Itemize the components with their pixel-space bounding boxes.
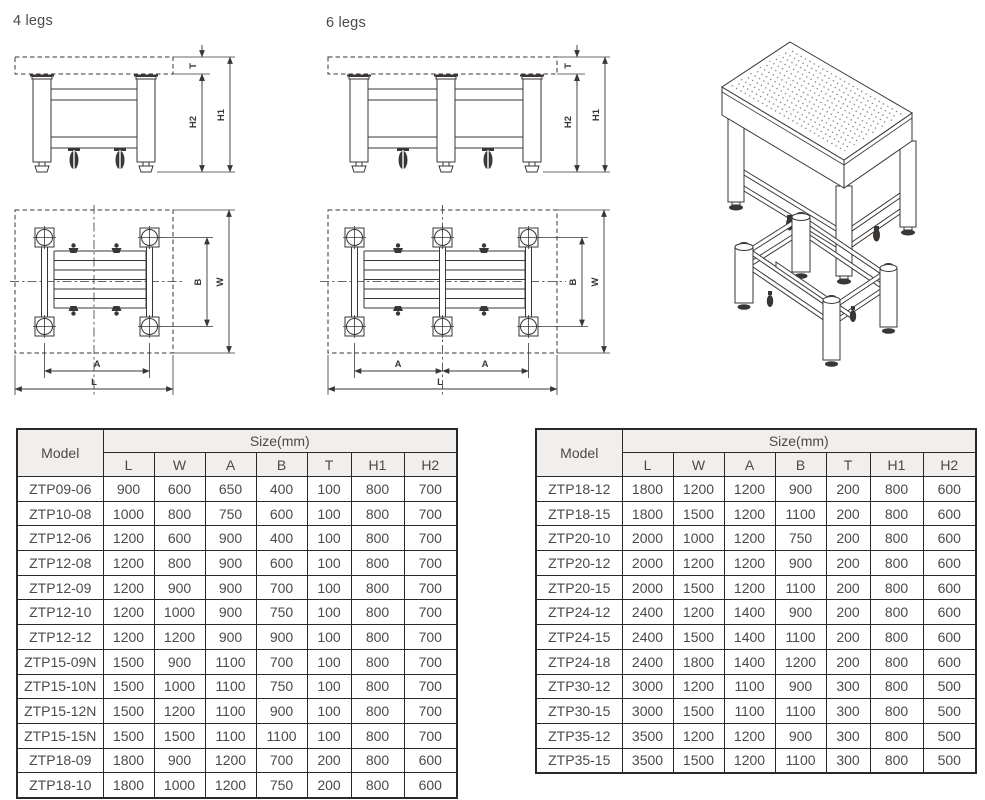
model-cell: ZTP30-15	[536, 699, 622, 724]
size-cell: 900	[205, 526, 256, 551]
size-cell: 1000	[154, 600, 205, 625]
size-cell: 200	[826, 526, 870, 551]
size-cell: 1200	[673, 723, 724, 748]
size-cell: 900	[154, 748, 205, 773]
size-cell: 900	[775, 723, 826, 748]
table-row: ZTP12-1212001200900900100800700	[17, 625, 457, 650]
size-cell: 1200	[154, 699, 205, 724]
size-cell: 800	[870, 649, 923, 674]
size-cell: 2400	[622, 600, 673, 625]
size-group-header: Size(mm)	[103, 429, 457, 453]
dimension-label-a: A	[395, 359, 402, 370]
size-cell: 500	[923, 699, 976, 724]
size-cell: 1200	[724, 526, 775, 551]
model-cell: ZTP20-15	[536, 575, 622, 600]
col-header-t: T	[826, 453, 870, 477]
model-cell: ZTP15-15N	[17, 723, 103, 748]
size-cell: 800	[154, 501, 205, 526]
size-cell: 2000	[622, 526, 673, 551]
size-cell: 900	[775, 674, 826, 699]
table-row: ZTP35-12350012001200900300800500	[536, 723, 976, 748]
size-cell: 750	[205, 501, 256, 526]
size-cell: 100	[307, 723, 351, 748]
size-cell: 1000	[154, 674, 205, 699]
col-header-l: L	[103, 453, 154, 477]
size-cell: 700	[404, 526, 457, 551]
size-cell: 800	[870, 501, 923, 526]
size-cell: 1100	[775, 699, 826, 724]
caster-icon	[767, 291, 773, 307]
size-cell: 200	[307, 773, 351, 798]
size-cell: 600	[404, 748, 457, 773]
size-cell: 100	[307, 501, 351, 526]
model-cell: ZTP15-09N	[17, 649, 103, 674]
size-cell: 1100	[775, 625, 826, 650]
size-cell: 1200	[205, 748, 256, 773]
size-cell: 800	[870, 625, 923, 650]
size-cell: 1100	[775, 501, 826, 526]
model-cell: ZTP15-10N	[17, 674, 103, 699]
size-cell: 1200	[724, 501, 775, 526]
size-cell: 800	[351, 477, 404, 502]
size-cell: 700	[404, 699, 457, 724]
dimension-label-h1: H1	[591, 108, 602, 121]
size-cell: 100	[307, 526, 351, 551]
size-cell: 800	[870, 551, 923, 576]
size-cell: 1100	[724, 674, 775, 699]
size-cell: 700	[404, 674, 457, 699]
size-cell: 1400	[724, 649, 775, 674]
size-cell: 400	[256, 477, 307, 502]
size-cell: 900	[154, 575, 205, 600]
model-cell: ZTP30-12	[536, 674, 622, 699]
model-column-header: Model	[17, 429, 103, 477]
size-cell: 700	[404, 501, 457, 526]
table-row: ZTP15-12N150012001100900100800700	[17, 699, 457, 724]
tabletop-outline	[15, 57, 173, 74]
size-cell: 600	[923, 551, 976, 576]
col-header-h1: H1	[870, 453, 923, 477]
size-cell: 3000	[622, 699, 673, 724]
size-cell: 700	[404, 575, 457, 600]
table-row: ZTP15-10N150010001100750100800700	[17, 674, 457, 699]
size-cell: 1500	[673, 699, 724, 724]
size-cell: 800	[870, 674, 923, 699]
size-cell: 1200	[103, 625, 154, 650]
size-cell: 800	[870, 699, 923, 724]
size-cell: 1100	[775, 575, 826, 600]
leg-pad	[138, 315, 161, 338]
table-row: ZTP10-081000800750600100800700	[17, 501, 457, 526]
size-cell: 1100	[724, 699, 775, 724]
iso-frame-only	[735, 213, 897, 367]
caster-icon	[873, 226, 880, 242]
four-legs-section-label: 4 legs	[13, 13, 53, 29]
size-cell: 900	[775, 551, 826, 576]
table-row: ZTP18-12180012001200900200800600	[536, 477, 976, 502]
table-row: ZTP18-10180010001200750200800600	[17, 773, 457, 798]
size-cell: 800	[351, 501, 404, 526]
size-cell: 700	[404, 649, 457, 674]
size-cell: 500	[923, 723, 976, 748]
size-cell: 900	[256, 699, 307, 724]
model-cell: ZTP24-15	[536, 625, 622, 650]
size-cell: 700	[256, 748, 307, 773]
isometric-views-drawing	[688, 30, 985, 405]
dimension-label-w: W	[215, 277, 226, 286]
size-cell: 200	[826, 501, 870, 526]
dimension-lines: T H2 H1	[157, 45, 235, 172]
table-row: ZTP12-091200900900700100800700	[17, 575, 457, 600]
size-cell: 600	[154, 477, 205, 502]
size-cell: 100	[307, 575, 351, 600]
leg	[836, 186, 852, 285]
table-row: ZTP09-06900600650400100800700	[17, 477, 457, 502]
size-cell: 800	[351, 773, 404, 798]
size-cell: 600	[256, 551, 307, 576]
size-cell: 1800	[103, 773, 154, 798]
size-cell: 1400	[724, 600, 775, 625]
table-row: ZTP30-12300012001100900300800500	[536, 674, 976, 699]
size-cell: 800	[870, 748, 923, 773]
dimension-label-w: W	[590, 277, 601, 286]
caster-icon	[393, 306, 403, 316]
size-cell: 1200	[673, 674, 724, 699]
caster-icon	[114, 148, 126, 169]
leg	[434, 75, 458, 173]
table-row: ZTP18-151800150012001100200800600	[536, 501, 976, 526]
top-view-6-legs-drawing: B W A A L	[320, 203, 620, 403]
size-cell: 750	[256, 600, 307, 625]
size-cell: 2000	[622, 575, 673, 600]
size-cell: 1200	[724, 723, 775, 748]
table-row: ZTP35-153500150012001100300800500	[536, 748, 976, 773]
front-view-6-legs-drawing: T H2 H1	[320, 38, 620, 188]
size-cell: 1500	[103, 723, 154, 748]
spec-table-left: Model Size(mm) LWABTH1H2 ZTP09-069006006…	[16, 428, 458, 799]
model-cell: ZTP20-10	[536, 526, 622, 551]
size-cell: 1800	[622, 477, 673, 502]
caster-icon	[69, 306, 79, 316]
size-cell: 1500	[154, 723, 205, 748]
dimension-label-t: T	[563, 63, 574, 69]
isolator-leg	[792, 213, 810, 279]
col-header-a: A	[205, 453, 256, 477]
col-header-h2: H2	[923, 453, 976, 477]
size-cell: 100	[307, 699, 351, 724]
size-cell: 500	[923, 748, 976, 773]
dimension-label-a: A	[94, 359, 101, 370]
leg-pad	[33, 226, 56, 249]
size-cell: 1200	[103, 575, 154, 600]
caster-icon	[68, 148, 80, 169]
size-cell: 600	[923, 625, 976, 650]
dimension-label-b: B	[193, 278, 204, 285]
size-cell: 500	[923, 674, 976, 699]
leg	[520, 75, 544, 173]
table-row: ZTP12-061200600900400100800700	[17, 526, 457, 551]
isolator-leg	[823, 296, 840, 367]
size-cell: 900	[154, 649, 205, 674]
size-cell: 100	[307, 600, 351, 625]
size-cell: 800	[870, 477, 923, 502]
dimension-label-t: T	[188, 63, 199, 69]
size-cell: 700	[256, 575, 307, 600]
size-cell: 100	[307, 477, 351, 502]
model-cell: ZTP09-06	[17, 477, 103, 502]
size-cell: 800	[870, 723, 923, 748]
size-cell: 750	[256, 674, 307, 699]
dimension-label-h2: H2	[188, 116, 199, 128]
caster-icon	[112, 243, 122, 253]
size-cell: 2400	[622, 625, 673, 650]
model-cell: ZTP12-09	[17, 575, 103, 600]
table-row: ZTP30-153000150011001100300800500	[536, 699, 976, 724]
size-cell: 100	[307, 625, 351, 650]
size-cell: 600	[923, 600, 976, 625]
model-cell: ZTP24-12	[536, 600, 622, 625]
model-cell: ZTP12-10	[17, 600, 103, 625]
caster-icon	[479, 243, 489, 253]
size-cell: 800	[351, 551, 404, 576]
leg	[347, 75, 371, 173]
size-cell: 200	[826, 551, 870, 576]
size-cell: 900	[205, 600, 256, 625]
dimension-label-l: L	[437, 377, 443, 388]
size-cell: 700	[404, 477, 457, 502]
table-row: ZTP15-15N1500150011001100100800700	[17, 723, 457, 748]
size-cell: 1100	[775, 748, 826, 773]
table-row: ZTP18-0918009001200700200800600	[17, 748, 457, 773]
model-cell: ZTP12-08	[17, 551, 103, 576]
leg	[900, 141, 916, 236]
size-cell: 750	[775, 526, 826, 551]
size-cell: 1200	[673, 600, 724, 625]
catalog-page: 4 legs 6 legs	[0, 0, 985, 800]
size-cell: 300	[826, 748, 870, 773]
size-cell: 1500	[103, 699, 154, 724]
six-legs-section-label: 6 legs	[326, 15, 366, 31]
size-cell: 600	[154, 526, 205, 551]
leg	[728, 115, 744, 211]
table-row: ZTP15-09N15009001100700100800700	[17, 649, 457, 674]
leg	[30, 75, 54, 173]
model-cell: ZTP18-15	[536, 501, 622, 526]
size-cell: 1500	[673, 575, 724, 600]
size-cell: 700	[256, 649, 307, 674]
col-header-l: L	[622, 453, 673, 477]
size-cell: 1200	[103, 600, 154, 625]
size-cell: 800	[351, 526, 404, 551]
size-cell: 1800	[622, 501, 673, 526]
size-cell: 800	[351, 575, 404, 600]
table-row: ZTP20-152000150012001100200800600	[536, 575, 976, 600]
front-view-4-legs-drawing: T H2 H1	[10, 38, 240, 188]
size-cell: 900	[205, 575, 256, 600]
size-cell: 1500	[673, 501, 724, 526]
size-cell: 1100	[256, 723, 307, 748]
leg-pad	[517, 226, 540, 249]
model-cell: ZTP12-12	[17, 625, 103, 650]
size-cell: 1200	[724, 477, 775, 502]
leg-pad	[517, 315, 540, 338]
spec-table-right: Model Size(mm) LWABTH1H2 ZTP18-121800120…	[535, 428, 977, 774]
size-cell: 800	[870, 575, 923, 600]
model-cell: ZTP24-18	[536, 649, 622, 674]
size-cell: 900	[775, 477, 826, 502]
size-cell: 200	[826, 649, 870, 674]
size-cell: 200	[826, 477, 870, 502]
table-row: ZTP24-152400150014001100200800600	[536, 625, 976, 650]
model-cell: ZTP35-12	[536, 723, 622, 748]
model-cell: ZTP18-12	[536, 477, 622, 502]
size-cell: 800	[870, 600, 923, 625]
size-cell: 900	[205, 625, 256, 650]
size-cell: 100	[307, 649, 351, 674]
size-cell: 400	[256, 526, 307, 551]
model-cell: ZTP18-10	[17, 773, 103, 798]
size-cell: 800	[351, 649, 404, 674]
col-header-w: W	[673, 453, 724, 477]
model-cell: ZTP15-12N	[17, 699, 103, 724]
size-cell: 750	[256, 773, 307, 798]
size-cell: 800	[351, 600, 404, 625]
col-header-w: W	[154, 453, 205, 477]
table-row: ZTP12-081200800900600100800700	[17, 551, 457, 576]
size-cell: 800	[351, 674, 404, 699]
size-cell: 600	[923, 501, 976, 526]
size-cell: 200	[826, 625, 870, 650]
col-header-h2: H2	[404, 453, 457, 477]
dimension-label-b: B	[568, 278, 579, 285]
leg-pad	[343, 226, 366, 249]
dimension-label-h2: H2	[563, 116, 574, 128]
leg-pad	[431, 226, 454, 249]
size-cell: 200	[826, 575, 870, 600]
size-cell: 300	[826, 674, 870, 699]
size-cell: 1100	[205, 699, 256, 724]
table-row: ZTP20-12200012001200900200800600	[536, 551, 976, 576]
dimension-lines: B W A A L	[328, 210, 610, 395]
size-cell: 200	[307, 748, 351, 773]
size-cell: 1200	[103, 551, 154, 576]
size-cell: 900	[256, 625, 307, 650]
size-cell: 1200	[724, 551, 775, 576]
top-view-4-legs-drawing: B W A L	[10, 203, 240, 403]
col-header-b: B	[775, 453, 826, 477]
model-cell: ZTP12-06	[17, 526, 103, 551]
dimension-lines: T H2 H1	[543, 45, 610, 172]
size-cell: 1800	[103, 748, 154, 773]
isolator-leg	[735, 243, 753, 310]
size-cell: 3000	[622, 674, 673, 699]
dimension-label-a: A	[482, 359, 489, 370]
size-cell: 1500	[673, 748, 724, 773]
size-cell: 1500	[103, 674, 154, 699]
caster-icon	[479, 306, 489, 316]
caster-icon	[393, 243, 403, 253]
col-header-h1: H1	[351, 453, 404, 477]
size-cell: 800	[351, 625, 404, 650]
size-cell: 1200	[724, 575, 775, 600]
size-cell: 700	[404, 600, 457, 625]
size-cell: 1100	[205, 649, 256, 674]
size-cell: 800	[351, 699, 404, 724]
size-cell: 1000	[673, 526, 724, 551]
size-cell: 900	[775, 600, 826, 625]
size-cell: 1200	[673, 551, 724, 576]
size-cell: 1200	[205, 773, 256, 798]
size-cell: 300	[826, 699, 870, 724]
size-cell: 1000	[154, 773, 205, 798]
model-cell: ZTP20-12	[536, 551, 622, 576]
size-cell: 700	[404, 625, 457, 650]
col-header-t: T	[307, 453, 351, 477]
isolator-leg	[880, 264, 897, 334]
size-cell: 1500	[673, 625, 724, 650]
size-cell: 600	[923, 526, 976, 551]
leg-pad	[33, 315, 56, 338]
size-cell: 700	[404, 723, 457, 748]
size-cell: 1800	[673, 649, 724, 674]
size-cell: 3500	[622, 748, 673, 773]
size-cell: 100	[307, 674, 351, 699]
size-cell: 100	[307, 551, 351, 576]
col-header-b: B	[256, 453, 307, 477]
model-column-header: Model	[536, 429, 622, 477]
size-cell: 2000	[622, 551, 673, 576]
size-cell: 900	[103, 477, 154, 502]
dimension-label-l: L	[91, 377, 97, 388]
size-cell: 800	[870, 526, 923, 551]
size-cell: 1400	[724, 625, 775, 650]
model-cell: ZTP35-15	[536, 748, 622, 773]
size-cell: 1100	[205, 723, 256, 748]
col-header-a: A	[724, 453, 775, 477]
size-cell: 2400	[622, 649, 673, 674]
table-row: ZTP24-12240012001400900200800600	[536, 600, 976, 625]
dimension-label-h1: H1	[216, 108, 227, 121]
frame-rails	[54, 251, 146, 308]
caster-icon	[397, 148, 409, 169]
table-row: ZTP24-182400180014001200200800600	[536, 649, 976, 674]
leg-pad	[343, 315, 366, 338]
size-cell: 1200	[724, 748, 775, 773]
size-cell: 300	[826, 723, 870, 748]
tabletop-outline	[328, 57, 557, 74]
caster-icon	[112, 306, 122, 316]
model-cell: ZTP10-08	[17, 501, 103, 526]
caster-icon	[482, 148, 494, 169]
size-cell: 1200	[775, 649, 826, 674]
size-cell: 1200	[673, 477, 724, 502]
size-cell: 1500	[103, 649, 154, 674]
size-group-header: Size(mm)	[622, 429, 976, 453]
size-cell: 1200	[103, 526, 154, 551]
size-cell: 600	[256, 501, 307, 526]
size-cell: 800	[351, 723, 404, 748]
size-cell: 3500	[622, 723, 673, 748]
leg-pad	[431, 315, 454, 338]
caster-icon	[69, 243, 79, 253]
size-cell: 800	[351, 748, 404, 773]
size-cell: 800	[154, 551, 205, 576]
model-cell: ZTP18-09	[17, 748, 103, 773]
size-cell: 200	[826, 600, 870, 625]
size-cell: 1200	[154, 625, 205, 650]
size-cell: 650	[205, 477, 256, 502]
size-cell: 600	[923, 575, 976, 600]
